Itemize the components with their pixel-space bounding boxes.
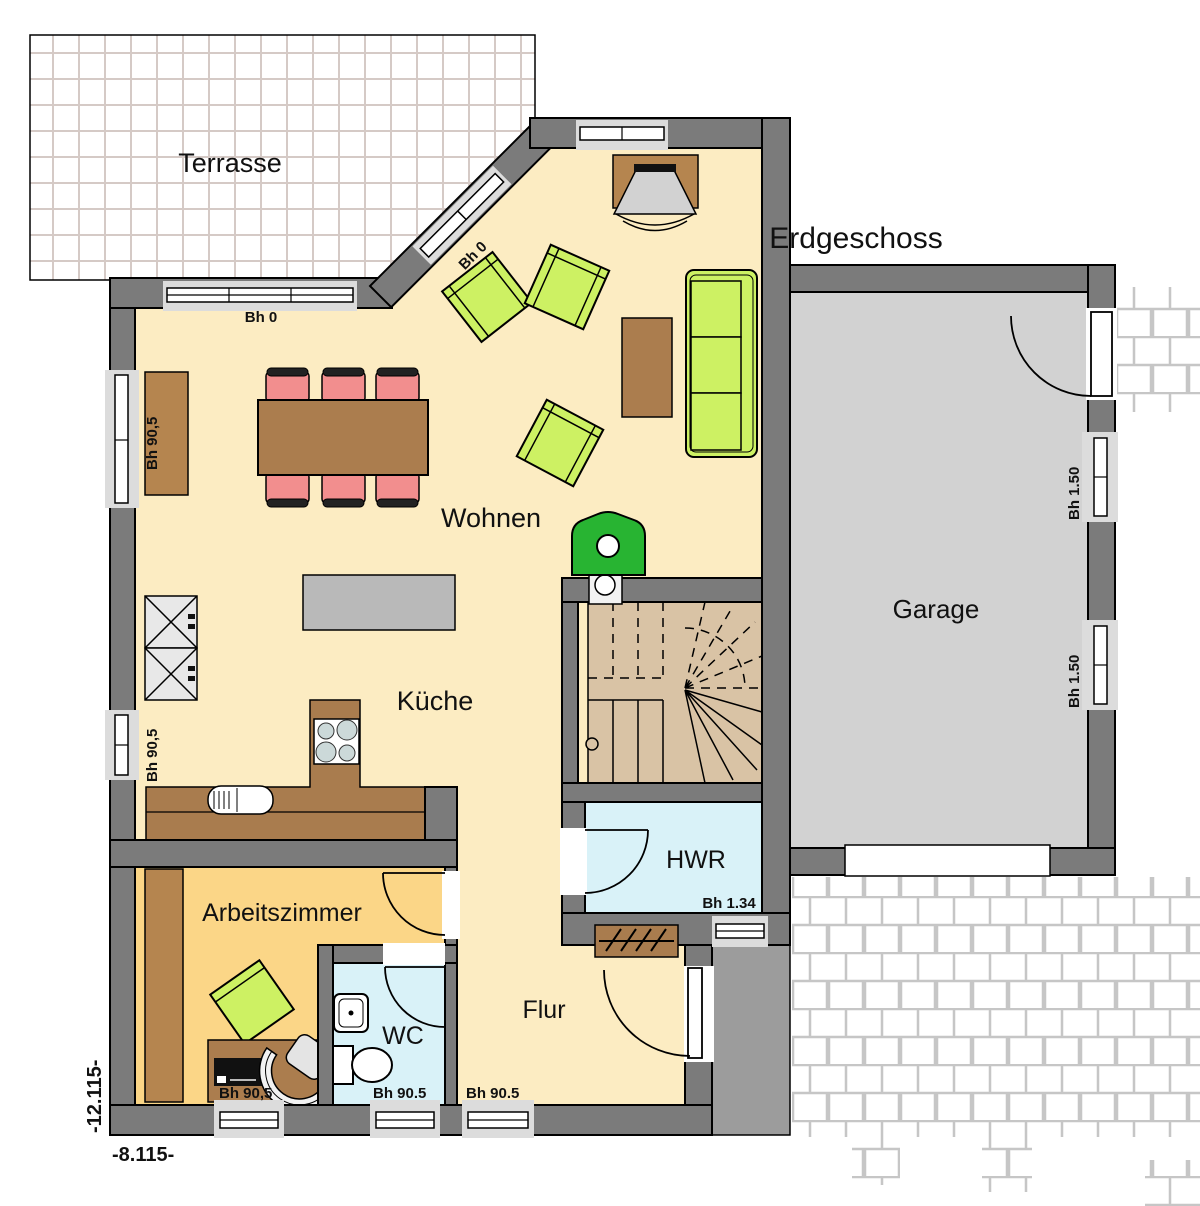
dining-set — [258, 368, 428, 507]
brick-path-garage-door — [1117, 287, 1200, 412]
window-living-west — [105, 370, 139, 508]
brick-cluster-1 — [852, 1137, 900, 1185]
desk-computer — [214, 1058, 262, 1086]
wall-stairs-west — [562, 602, 578, 783]
tv-back-bar — [634, 164, 676, 172]
label-hall: Flur — [522, 996, 565, 1024]
label-bh905-wc: Bh 90.5 — [373, 1085, 426, 1102]
kitchen-stove — [314, 719, 359, 764]
coat-rack — [595, 925, 678, 957]
floor-plan-page: Bh 0 — [0, 0, 1200, 1206]
brick-cluster-3 — [1145, 1160, 1200, 1206]
label-garage: Garage — [893, 594, 980, 624]
window-kitchen-west — [105, 710, 139, 780]
window-study-south — [214, 1100, 284, 1138]
label-bh150-garage-bottom: Bh 1.50 — [1066, 655, 1083, 708]
wc-toilet — [333, 1046, 392, 1084]
window-garage-east-upper — [1082, 432, 1118, 522]
label-terrace: Terrasse — [178, 148, 282, 178]
label-kitchen: Küche — [397, 686, 474, 716]
sofa — [686, 270, 757, 457]
label-bh905-kitchen: Bh 90,5 — [144, 729, 161, 782]
label-wc: WC — [382, 1022, 424, 1050]
wall-wc-west — [318, 945, 333, 1105]
kitchen-island — [303, 575, 455, 630]
label-bh905-living: Bh 90,5 — [144, 417, 161, 470]
wall-kitchen-stub — [425, 787, 457, 840]
label-dim-horizontal: -8.115- — [112, 1144, 174, 1166]
wc-sink — [334, 994, 368, 1032]
wall-stairs-south — [562, 783, 762, 802]
label-bh0-top: Bh 0 — [245, 309, 278, 326]
label-bh150-garage-top: Bh 1.50 — [1066, 467, 1083, 520]
wall-kitchen-study — [110, 840, 457, 867]
dining-table — [258, 400, 428, 475]
kitchen-tall-units — [145, 596, 197, 700]
floor-plan-erdgeschoss: Bh 0 — [0, 0, 1200, 1206]
window-terrace-north — [163, 281, 357, 311]
label-bh905-study: Bh 90,5 — [219, 1085, 272, 1102]
coffee-table — [622, 318, 672, 417]
wall-garage-north — [790, 265, 1115, 292]
window-garage-east-lower — [1082, 620, 1118, 710]
label-bh134-utility: Bh 1.34 — [702, 895, 756, 912]
window-living-north — [576, 120, 668, 150]
window-wc-south — [370, 1100, 440, 1138]
label-bh905-hall: Bh 90.5 — [466, 1085, 519, 1102]
label-living: Wohnen — [441, 503, 541, 533]
garage-floor — [790, 292, 1088, 848]
entrance-porch — [712, 945, 790, 1135]
window-hall-south — [462, 1100, 534, 1138]
page-title: Erdgeschoss — [769, 222, 942, 255]
door-garage-gate — [845, 845, 1050, 876]
staircase-floor — [588, 602, 762, 783]
window-hwr-porch — [712, 916, 768, 947]
label-study: Arbeitszimmer — [202, 899, 362, 927]
brick-driveway — [792, 877, 1200, 1137]
brick-cluster-2 — [982, 1137, 1032, 1192]
label-utility: HWR — [666, 846, 726, 874]
label-dim-vertical: -12.115- — [84, 1060, 106, 1133]
kitchen-sink — [208, 786, 273, 814]
study-wardrobe — [145, 869, 183, 1102]
